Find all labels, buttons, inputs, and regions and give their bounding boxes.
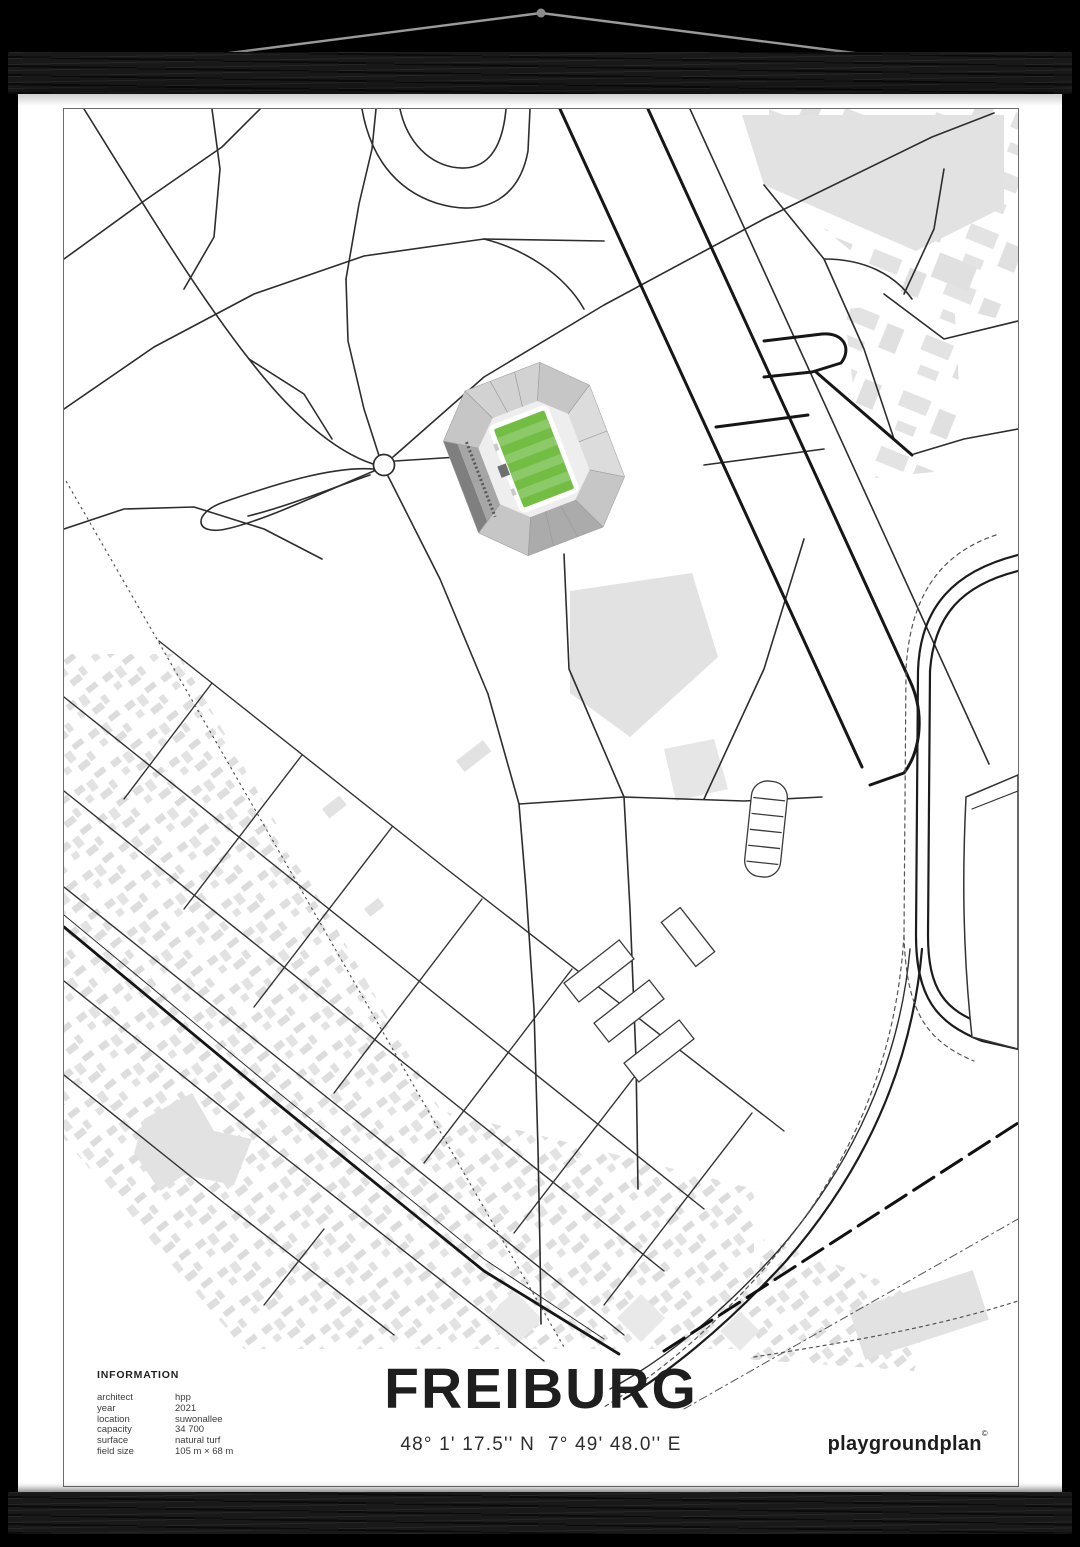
freiburg-street-map [64, 109, 1018, 1486]
map-frame-border: INFORMATION architect hpp year 2021 loca… [63, 108, 1019, 1487]
poster-sheet: INFORMATION architect hpp year 2021 loca… [18, 94, 1062, 1492]
bottom-hanger-bar [8, 1492, 1072, 1534]
top-hanger-bar [8, 52, 1072, 94]
poster-title: FREIBURG [64, 1361, 1018, 1418]
brand-logo-mark: © [982, 1429, 988, 1438]
cord-hook-icon [537, 9, 546, 18]
roundabout-icon [374, 455, 395, 476]
poster-mockup-scene: INFORMATION architect hpp year 2021 loca… [0, 0, 1080, 1547]
brand-logo: playgroundplan© [828, 1429, 988, 1456]
